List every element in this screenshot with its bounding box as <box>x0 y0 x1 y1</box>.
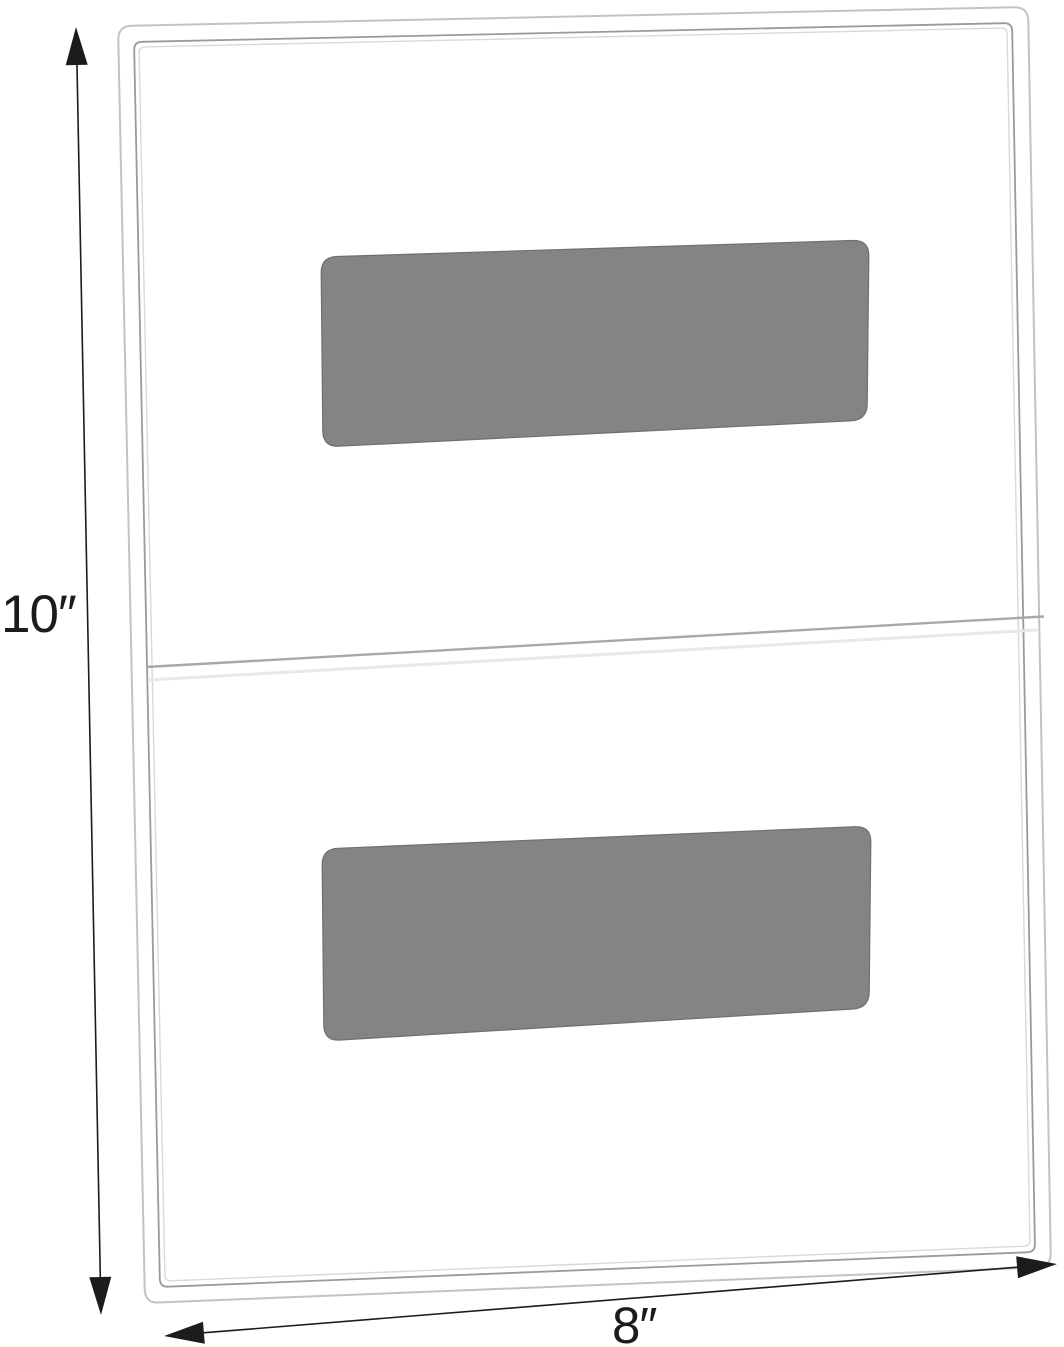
height-arrow-head-down-icon <box>89 1277 111 1315</box>
adhesive-pad-top <box>321 240 869 446</box>
diagram-canvas: 10″ 8″ <box>0 0 1064 1347</box>
height-arrow-head-up-icon <box>66 27 88 65</box>
height-dimension-arrow <box>66 27 112 1315</box>
height-dimension-label: 10″ <box>1 585 76 644</box>
adhesive-pad-bottom <box>322 827 871 1040</box>
width-arrow-head-left-icon <box>164 1322 205 1344</box>
acrylic-frame <box>118 7 1050 1302</box>
width-dimension-label: 8″ <box>612 1297 657 1347</box>
height-arrow-line <box>77 60 101 1282</box>
product-dimension-diagram: 10″ 8″ <box>0 0 1064 1347</box>
